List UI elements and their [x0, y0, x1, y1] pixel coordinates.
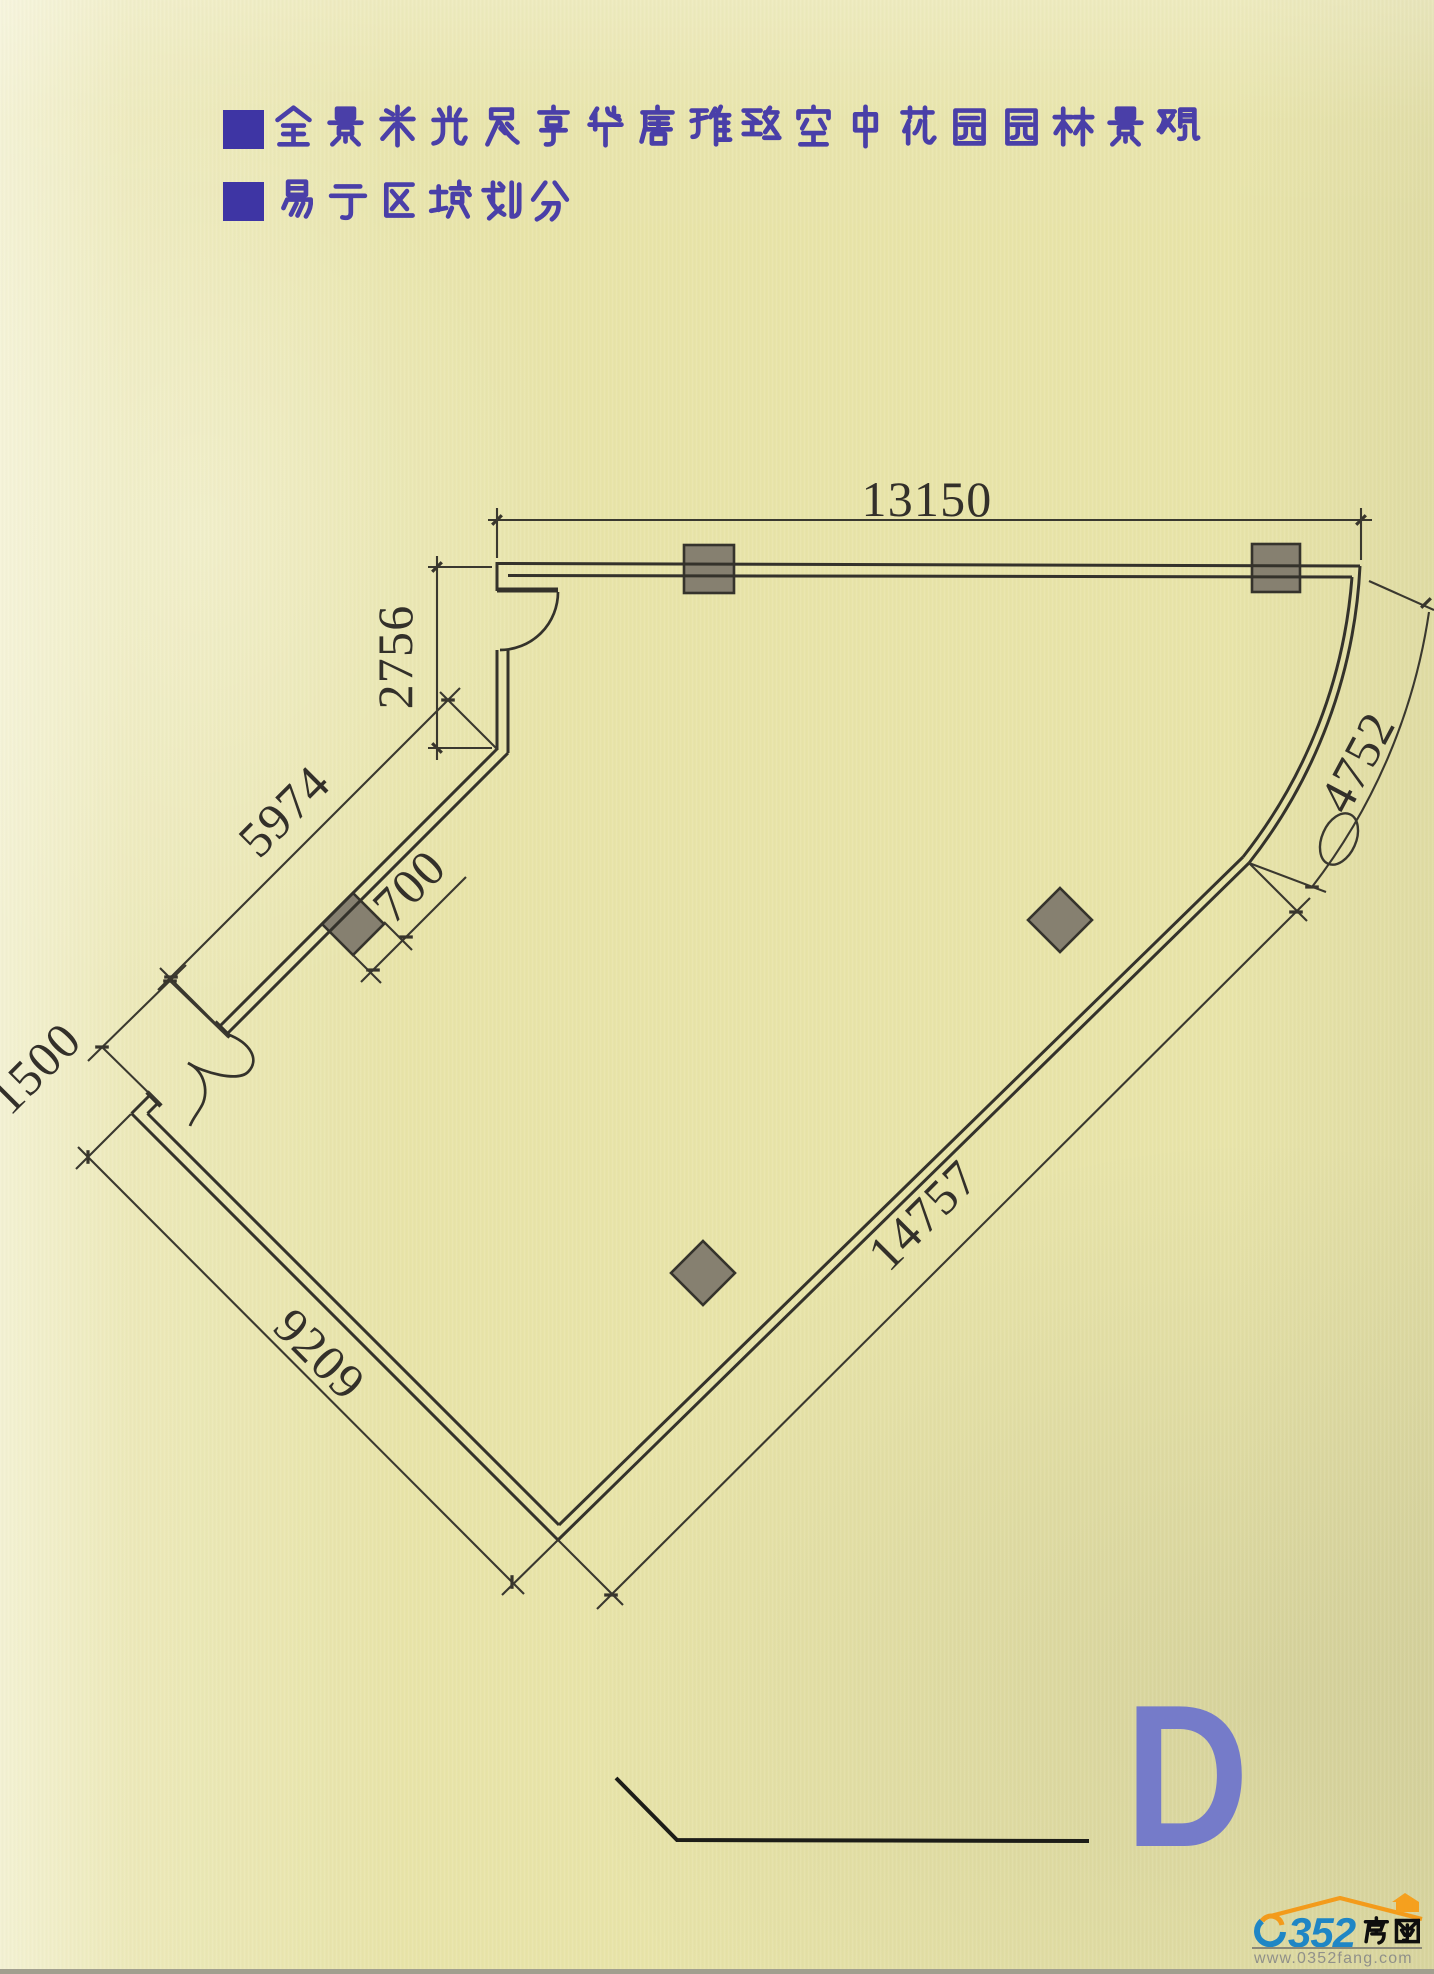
svg-text:1500: 1500	[0, 1011, 92, 1125]
svg-text:13150: 13150	[862, 471, 993, 527]
svg-text:www.0352fang.com: www.0352fang.com	[1253, 1950, 1413, 1967]
svg-text:D: D	[1125, 1663, 1249, 1890]
svg-text:5974: 5974	[227, 754, 341, 868]
svg-text:4752: 4752	[1308, 703, 1407, 822]
svg-text:2756: 2756	[367, 605, 423, 710]
svg-text:9209: 9209	[263, 1297, 377, 1411]
